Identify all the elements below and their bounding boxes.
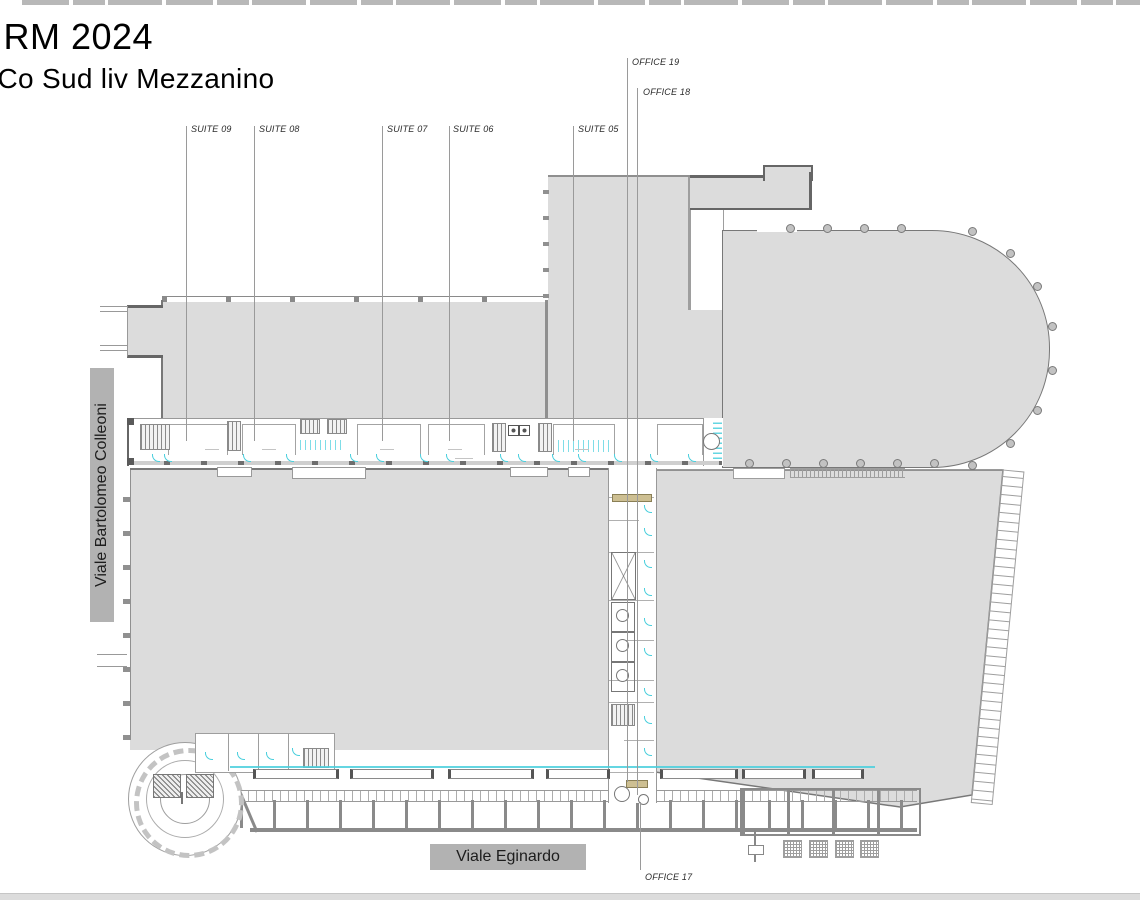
west-bridge-block [127,305,163,358]
grate-block [783,840,802,858]
corridor-corner-block [127,418,134,425]
ramp-stair-quadrant [186,774,214,798]
stairs [227,421,241,451]
leader-line-suite-08 [254,126,255,441]
column [1033,282,1042,291]
column [819,459,828,468]
column [860,224,869,233]
suite-label-08: SUITE 08 [259,124,300,134]
bottom-cropped-strip [0,893,1140,900]
hall-south-east-porch-hatch [790,468,905,478]
colonnade-heavy-bays [740,788,921,836]
wing-north [548,175,690,418]
hall-north-west [162,302,545,418]
planter-bench [448,769,534,779]
vestibule [510,467,548,477]
grate-block [860,840,879,858]
west-entry-rails [97,654,127,667]
floor-plan-canvas: IRM 2024 iCo Sud liv Mezzanino SUITE 09 … [0,0,1140,900]
column [856,459,865,468]
planter-bench [546,769,610,779]
leader-line-office-18 [637,88,638,795]
stairs [300,419,320,434]
hall-south-east [655,470,1003,807]
page-title: IRM 2024 [0,16,153,58]
annex-north-east [690,177,812,210]
suite-label-07: SUITE 07 [387,124,428,134]
stairs [327,419,347,434]
spine-divider [609,600,654,601]
room-tag [575,449,589,450]
leader-line-suite-07 [382,126,383,441]
suite-06-room [428,424,485,455]
room-divider [228,733,229,771]
stair-shaft-x [611,552,636,600]
leader-line-office-17 [640,802,641,870]
leader-line-suite-09 [186,126,187,441]
column [823,224,832,233]
grate-block [835,840,854,858]
column [1048,322,1057,331]
annex-step [763,165,813,181]
lobby-comb [300,440,345,450]
office-label-17: OFFICE 17 [645,872,692,882]
street-label-left: Viale Bartolomeo Colleoni [90,368,114,622]
suite-label-05: SUITE 05 [578,124,619,134]
column [893,459,902,468]
room-tag [380,449,394,450]
stair-landing-tan [612,494,652,502]
stairs [140,424,170,450]
spine-divider [609,520,639,521]
suite-08-room [242,424,296,455]
promenade-cyan-line [230,766,875,768]
column [968,227,977,236]
hall-south-west-left-wall [123,470,131,740]
stairs [538,423,552,452]
planter-bench [253,769,339,779]
vestibule [217,467,252,477]
wing-rotunda-connector [690,310,722,418]
colonnade-post-box [748,845,764,855]
fan-symbol [703,433,720,450]
planter-bench [660,769,738,779]
grate-block [809,840,828,858]
street-label-bottom: Viale Eginardo [430,844,586,870]
hall-south-west [130,468,608,750]
stairs [611,704,635,726]
corridor-corner-block [127,458,134,465]
column [745,459,754,468]
ramp-center-mark [181,792,183,804]
column [1006,439,1015,448]
suite-09-room [168,424,228,455]
column [1006,249,1015,258]
leader-line-office-19 [627,58,628,782]
room-tag [455,458,473,459]
vestibule [292,467,366,479]
suite-07-room [357,424,421,455]
leader-line-suite-05 [573,126,574,441]
suite-label-06: SUITE 06 [453,124,494,134]
west-bridge-rail-top [100,306,128,312]
column [1048,366,1057,375]
wing-north-left-ticks [543,180,549,298]
office-label-19: OFFICE 19 [632,57,679,67]
room-tag [205,449,219,450]
west-bridge-rail-bottom [100,345,128,351]
column [1033,406,1042,415]
door-circle [614,786,630,802]
stairs [492,423,506,452]
planter-bench [742,769,806,779]
street-label-left-text: Viale Bartolomeo Colleoni [93,403,111,587]
ramp-ladder-band [971,470,1024,804]
room-tag [448,449,462,450]
annex-notch [690,210,724,310]
elevator [519,425,530,436]
column [782,459,791,468]
spine-divider [624,740,654,741]
column [786,224,795,233]
planter-bench [350,769,434,779]
planter-bench [812,769,864,779]
room-tag [262,449,276,450]
spine-divider [609,702,654,703]
lobby-comb [558,440,610,452]
office-label-18: OFFICE 18 [643,87,690,97]
spine-divider [609,772,654,773]
street-label-bottom-text: Viale Eginardo [456,848,560,866]
elevator [508,425,519,436]
column [968,461,977,470]
ramp-stair-quadrant [153,774,181,798]
column [897,224,906,233]
column [930,459,939,468]
annex-right-wall [809,172,812,210]
porch-box [733,468,785,479]
leader-line-suite-06 [449,126,450,441]
office-room [657,424,703,455]
hall-rotunda [722,230,1050,468]
page-subtitle: iCo Sud liv Mezzanino [0,63,274,95]
vestibule [568,467,590,477]
annex-top-wall [690,175,765,178]
wing-north-top-wall [548,175,690,177]
top-cropped-strip [22,0,1140,5]
stairs [303,748,329,768]
suite-label-09: SUITE 09 [191,124,232,134]
